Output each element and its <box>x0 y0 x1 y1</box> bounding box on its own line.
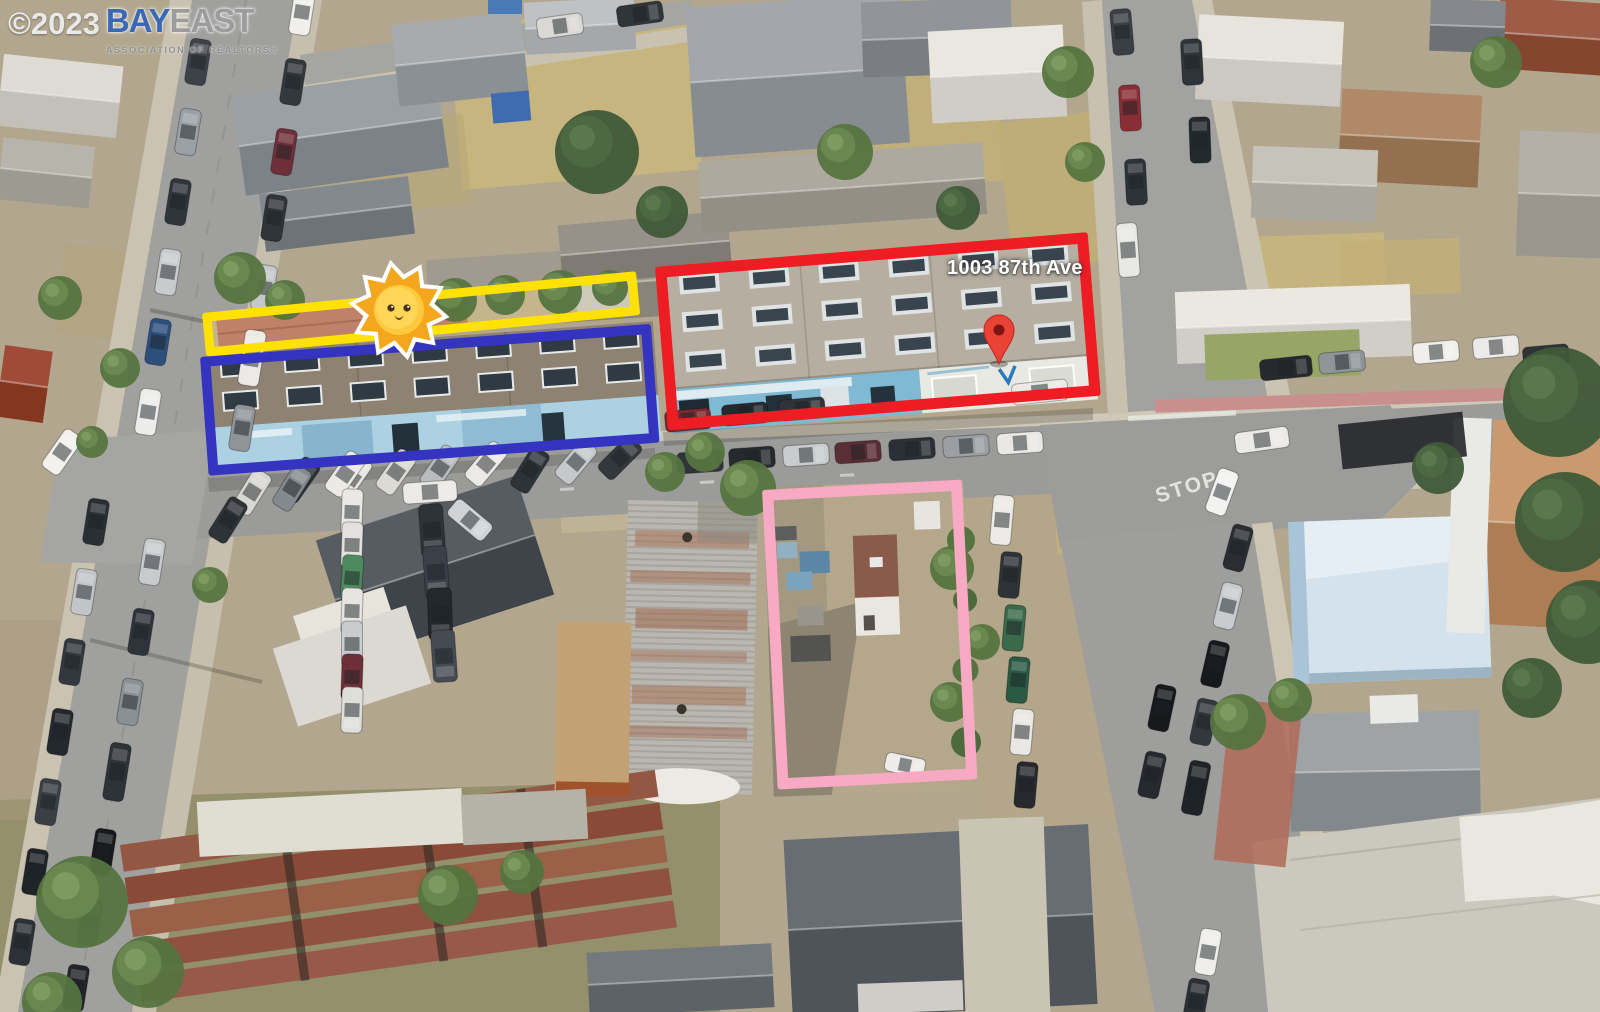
tree <box>1268 678 1312 722</box>
house <box>1195 14 1344 106</box>
tree <box>1210 694 1266 750</box>
watermark: ©2023 BAYEAST ASSOCIATION OF REALTORS® <box>8 4 279 55</box>
car <box>998 551 1023 599</box>
tree <box>192 567 228 603</box>
structure <box>461 789 588 845</box>
car <box>341 687 364 734</box>
car <box>996 431 1043 455</box>
car <box>1189 117 1212 164</box>
brand-bay: BAY <box>106 2 170 39</box>
tree <box>36 856 128 948</box>
structure <box>488 0 522 14</box>
house <box>1289 710 1481 831</box>
watermark-tagline: ASSOCIATION OF REALTORS® <box>106 45 279 55</box>
structure <box>491 90 531 123</box>
car <box>1472 335 1520 360</box>
watermark-year: ©2023 <box>8 4 100 44</box>
structure <box>959 817 1051 1012</box>
car <box>1010 708 1035 756</box>
aerial-photo-canvas: STOP 1003 87th Ave ©2023 BAYEAST ASSOCIA… <box>0 0 1600 1012</box>
tree <box>555 110 639 194</box>
structure <box>1370 694 1419 724</box>
tree <box>936 186 980 230</box>
car <box>1124 158 1147 205</box>
tree <box>1065 142 1105 182</box>
sun-face-sticker <box>344 255 454 365</box>
house <box>1251 146 1378 222</box>
car <box>942 434 989 458</box>
car <box>1118 84 1141 131</box>
house <box>0 54 123 138</box>
tree <box>100 348 140 388</box>
tree <box>1470 36 1522 88</box>
tree <box>418 865 478 925</box>
tree <box>500 850 544 894</box>
car <box>1412 340 1460 365</box>
car <box>782 443 829 467</box>
structure <box>555 621 632 794</box>
tree <box>38 276 82 320</box>
car <box>1014 761 1039 809</box>
watermark-logo: BAYEAST ASSOCIATION OF REALTORS® <box>106 4 279 55</box>
car <box>1180 38 1203 85</box>
tree <box>112 936 184 1008</box>
car <box>1116 222 1141 277</box>
watermark-brand: BAYEAST <box>106 4 279 45</box>
car <box>1110 8 1135 56</box>
tree <box>214 252 266 304</box>
structure <box>1459 807 1600 902</box>
tree <box>76 426 108 458</box>
tree <box>1412 442 1464 494</box>
car <box>1002 604 1027 652</box>
tree <box>645 452 685 492</box>
car <box>834 440 881 464</box>
car <box>402 480 457 505</box>
tree <box>817 124 873 180</box>
car <box>888 437 935 461</box>
house <box>586 943 774 1012</box>
pink-outline <box>762 480 977 790</box>
tree <box>1042 46 1094 98</box>
car <box>989 494 1014 546</box>
house <box>0 137 95 208</box>
tree <box>685 432 725 472</box>
car <box>1318 350 1366 375</box>
car <box>430 629 458 683</box>
car <box>1006 656 1031 704</box>
corrugated-warehouse <box>622 500 758 806</box>
tree <box>636 186 688 238</box>
brand-east: EAST <box>169 2 253 39</box>
address-label: 1003 87th Ave <box>947 257 1083 280</box>
house <box>1516 131 1600 259</box>
tree <box>1502 658 1562 718</box>
structure <box>858 980 964 1012</box>
map-pin-icon <box>976 300 1022 370</box>
